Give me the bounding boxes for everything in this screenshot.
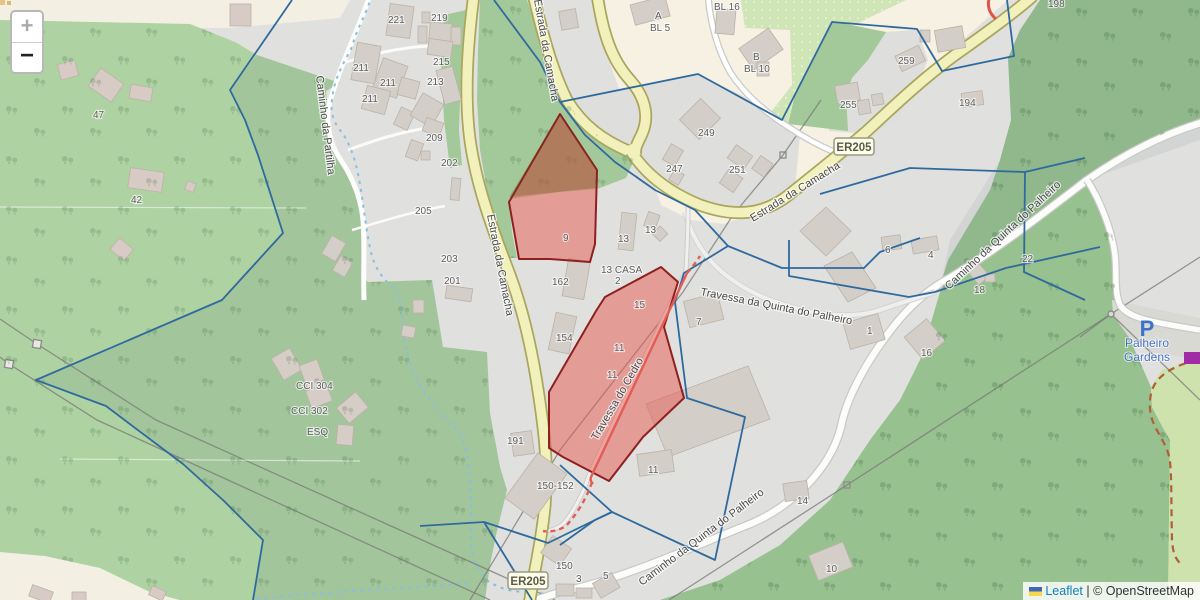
svg-text:Gardens: Gardens	[1124, 350, 1170, 364]
svg-text:211: 211	[353, 63, 369, 74]
svg-text:4: 4	[928, 250, 934, 261]
svg-text:211: 211	[380, 78, 396, 89]
svg-text:247: 247	[666, 164, 683, 175]
svg-text:194: 194	[959, 98, 976, 109]
svg-text:Palheiro: Palheiro	[1125, 336, 1169, 350]
svg-text:ER205: ER205	[836, 142, 872, 154]
svg-text:2: 2	[615, 276, 621, 287]
svg-text:221: 221	[388, 15, 405, 26]
svg-text:5: 5	[603, 571, 609, 582]
svg-text:1: 1	[867, 326, 873, 337]
svg-text:10: 10	[826, 564, 838, 575]
svg-text:154: 154	[556, 333, 573, 344]
svg-text:13 CASA: 13 CASA	[601, 265, 642, 276]
svg-text:205: 205	[415, 206, 432, 217]
svg-text:259: 259	[898, 56, 915, 67]
svg-text:14: 14	[797, 496, 809, 507]
svg-text:215: 215	[433, 57, 450, 68]
svg-text:202: 202	[441, 158, 458, 169]
svg-text:16: 16	[921, 348, 933, 359]
svg-text:249: 249	[698, 128, 715, 139]
svg-text:18: 18	[974, 285, 986, 296]
svg-text:42: 42	[131, 195, 143, 206]
svg-text:209: 209	[426, 133, 443, 144]
svg-text:ESQ: ESQ	[307, 427, 328, 438]
svg-text:A: A	[655, 11, 662, 22]
svg-text:203: 203	[441, 254, 458, 265]
svg-text:9: 9	[563, 233, 569, 244]
svg-text:211: 211	[362, 94, 378, 105]
svg-text:B: B	[753, 52, 760, 63]
svg-text:BL 16: BL 16	[714, 2, 740, 13]
svg-text:CCI 304: CCI 304	[296, 381, 333, 392]
svg-text:150-152: 150-152	[537, 481, 574, 492]
svg-text:13: 13	[645, 225, 657, 236]
svg-text:150: 150	[556, 561, 573, 572]
svg-text:201: 201	[444, 276, 461, 287]
svg-text:CCI 302: CCI 302	[291, 406, 328, 417]
svg-text:ER205: ER205	[510, 576, 546, 588]
svg-text:11: 11	[607, 370, 618, 381]
svg-text:198: 198	[1048, 0, 1065, 10]
svg-text:255: 255	[840, 100, 857, 111]
svg-text:213: 213	[427, 77, 444, 88]
svg-text:6: 6	[885, 245, 891, 256]
svg-text:47: 47	[93, 110, 105, 121]
svg-text:13: 13	[618, 234, 630, 245]
svg-text:11: 11	[648, 465, 659, 476]
svg-text:7: 7	[696, 317, 702, 328]
svg-text:15: 15	[634, 300, 646, 311]
svg-text:11: 11	[614, 343, 625, 354]
svg-text:219: 219	[431, 13, 448, 24]
svg-text:191: 191	[507, 436, 524, 447]
svg-text:251: 251	[729, 165, 746, 176]
svg-text:22: 22	[1022, 254, 1034, 265]
svg-text:BL 5: BL 5	[650, 23, 671, 34]
svg-text:3: 3	[576, 574, 582, 585]
svg-text:BL 10: BL 10	[744, 64, 770, 75]
svg-text:162: 162	[552, 277, 569, 288]
